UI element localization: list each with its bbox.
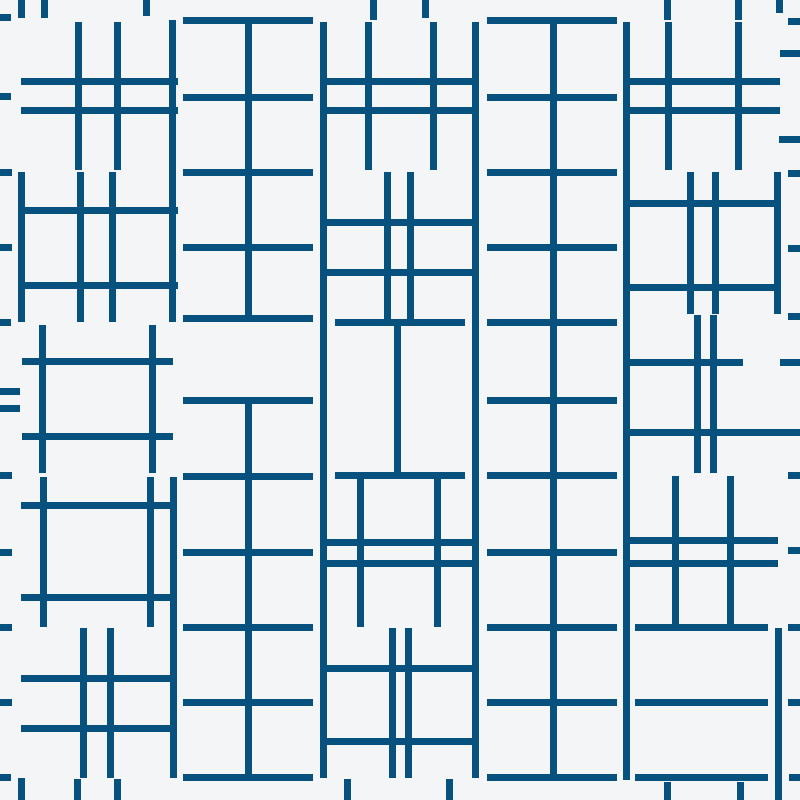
right-edge-tick [788, 547, 800, 554]
top-edge-tick [41, 0, 48, 18]
left-edge-tick [0, 405, 20, 412]
right-edge-tick [780, 50, 800, 57]
col3-hash-j-bar [325, 665, 473, 672]
col5-hash-l-post [735, 22, 742, 170]
top-edge-tick [664, 0, 671, 20]
col4-ladder-rail [550, 17, 557, 781]
col5-hash-m-bar [625, 200, 778, 207]
col5-ladder-p-rung [635, 699, 768, 706]
left-edge-tick [0, 388, 20, 395]
left-edge-tick [0, 774, 11, 781]
col1-hash-a-post [114, 22, 121, 170]
bottom-edge-tick [737, 782, 744, 800]
col5-hash-n-post [710, 315, 717, 473]
col5-ladder-p-rung [635, 624, 768, 631]
right-edge-tick [788, 624, 800, 631]
col3-hash-g-bar [323, 219, 478, 226]
top-edge-tick [370, 0, 377, 20]
col5-hash-n-post [694, 315, 701, 473]
right-edge-tick [788, 170, 800, 177]
col1-hash-e-post [80, 628, 87, 778]
col3-hash-g-post [407, 172, 414, 320]
bottom-edge-tick [74, 779, 81, 800]
right-edge-tick [788, 313, 800, 320]
left-edge-tick [0, 549, 12, 556]
col5-ladder-p-rail [775, 628, 782, 800]
pattern-canvas [0, 0, 800, 800]
right-edge-tick [788, 18, 800, 25]
col3-hash-f-bar [321, 107, 478, 114]
right-edge-tick [788, 245, 800, 252]
col5-hash-o-post [672, 476, 679, 627]
col1-hash-b-bar [18, 207, 178, 214]
col5-hash-o-bar [625, 537, 778, 544]
col3-hash-f-post [430, 22, 437, 170]
col3-ladder-h-rail [394, 319, 401, 479]
col5-hash-l-bar [623, 107, 780, 114]
col5-hash-l-post [665, 22, 672, 170]
col1-hash-a-post [75, 22, 82, 170]
col2-lower-ladder-rail [245, 397, 252, 781]
left-edge-tick [0, 169, 12, 176]
right-edge-tick [780, 359, 800, 366]
col1-hash-a-bar [21, 107, 178, 114]
right-edge-tick [788, 699, 800, 706]
left-edge-tick [0, 472, 12, 479]
col5-hash-m-post [712, 172, 719, 314]
bottom-edge-tick [446, 779, 453, 800]
left-edge-tick [0, 699, 12, 706]
col1-hash-c-post [39, 325, 46, 473]
top-edge-tick [776, 0, 783, 13]
col1-hash-b-post [18, 172, 25, 322]
col3-hash-i-post [357, 477, 364, 627]
col3-hash-f-bar [321, 78, 478, 85]
top-edge-tick [18, 0, 25, 18]
col2-col3-long-vertical [320, 22, 327, 778]
col3-hash-j-bar [325, 738, 473, 745]
left-edge-tick [0, 93, 11, 100]
col1-hash-b-post [109, 172, 116, 322]
col3-hash-g-post [384, 172, 391, 320]
col1-hash-d-post [147, 477, 154, 627]
right-edge-tick [789, 774, 800, 781]
col3-hash-j-post [405, 628, 412, 778]
col1-hash-a-bar [21, 78, 178, 85]
left-edge-tick [0, 319, 11, 326]
bottom-edge-tick [664, 782, 671, 800]
col1-long-vertical-upper [169, 20, 176, 322]
col3-hash-g-bar [323, 269, 478, 276]
col1-hash-d-post [40, 477, 47, 627]
bottom-edge-tick [114, 779, 121, 800]
col1-hash-e-bar [21, 675, 173, 682]
top-edge-tick [143, 0, 150, 16]
col1-hash-e-bar [21, 725, 173, 732]
col3-hash-i-post [434, 477, 441, 627]
bottom-edge-tick [344, 779, 351, 800]
col3-hash-i-bar [323, 539, 478, 546]
left-edge-tick [0, 14, 11, 21]
col5-hash-o-post [727, 476, 734, 627]
col4-col5-long-vertical [623, 22, 630, 780]
col1-hash-c-post [149, 325, 156, 473]
col3-col4-long-vertical [472, 22, 479, 778]
col5-hash-l-bar [623, 78, 780, 85]
col3-hash-f-post [365, 22, 372, 170]
col5-hash-m-bar [625, 284, 778, 291]
col5-hash-o-bar [625, 560, 778, 567]
col5-hash-n-bar [625, 359, 743, 366]
bottom-edge-tick [18, 778, 25, 800]
col5-hash-m-post [687, 172, 694, 314]
col5-ladder-p-rung [635, 774, 768, 781]
right-edge-tick [788, 472, 800, 479]
col2-upper-ladder-rail [245, 17, 252, 322]
col1-hash-b-bar [18, 282, 178, 289]
col3-hash-j-post [389, 628, 396, 778]
col3-hash-i-bar [323, 560, 478, 567]
col1-hash-b-post [77, 172, 84, 322]
left-edge-tick [0, 624, 12, 631]
right-edge-tick [779, 136, 800, 143]
col1-long-vertical-lower [170, 477, 177, 778]
top-edge-tick [735, 0, 742, 20]
top-edge-tick [422, 0, 429, 18]
col5-hash-m-post [774, 172, 781, 314]
col1-hash-e-post [107, 628, 114, 778]
left-edge-tick [0, 244, 12, 251]
